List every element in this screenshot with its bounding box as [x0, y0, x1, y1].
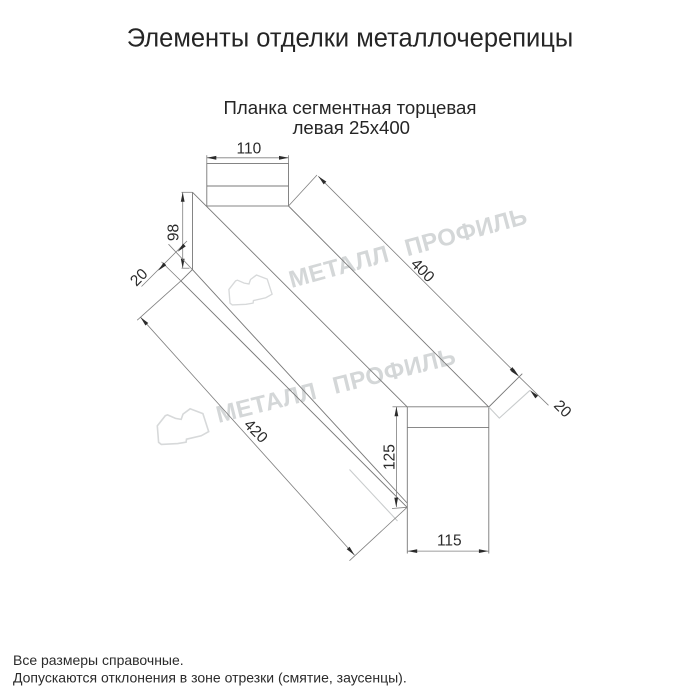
svg-text:Элементы отделки металлочерепи: Элементы отделки металлочерепицы	[127, 25, 573, 53]
svg-text:115: 115	[437, 533, 462, 550]
svg-text:левая 25х400: левая 25х400	[293, 117, 410, 138]
svg-text:Все размеры справочные.: Все размеры справочные.	[13, 652, 184, 668]
svg-text:Допускаются отклонения в зоне: Допускаются отклонения в зоне отрезки (с…	[13, 670, 407, 686]
svg-text:125: 125	[381, 444, 398, 470]
svg-text:110: 110	[237, 140, 262, 157]
svg-text:Планка сегментная торцевая: Планка сегментная торцевая	[224, 97, 477, 118]
svg-text:98: 98	[165, 224, 182, 241]
